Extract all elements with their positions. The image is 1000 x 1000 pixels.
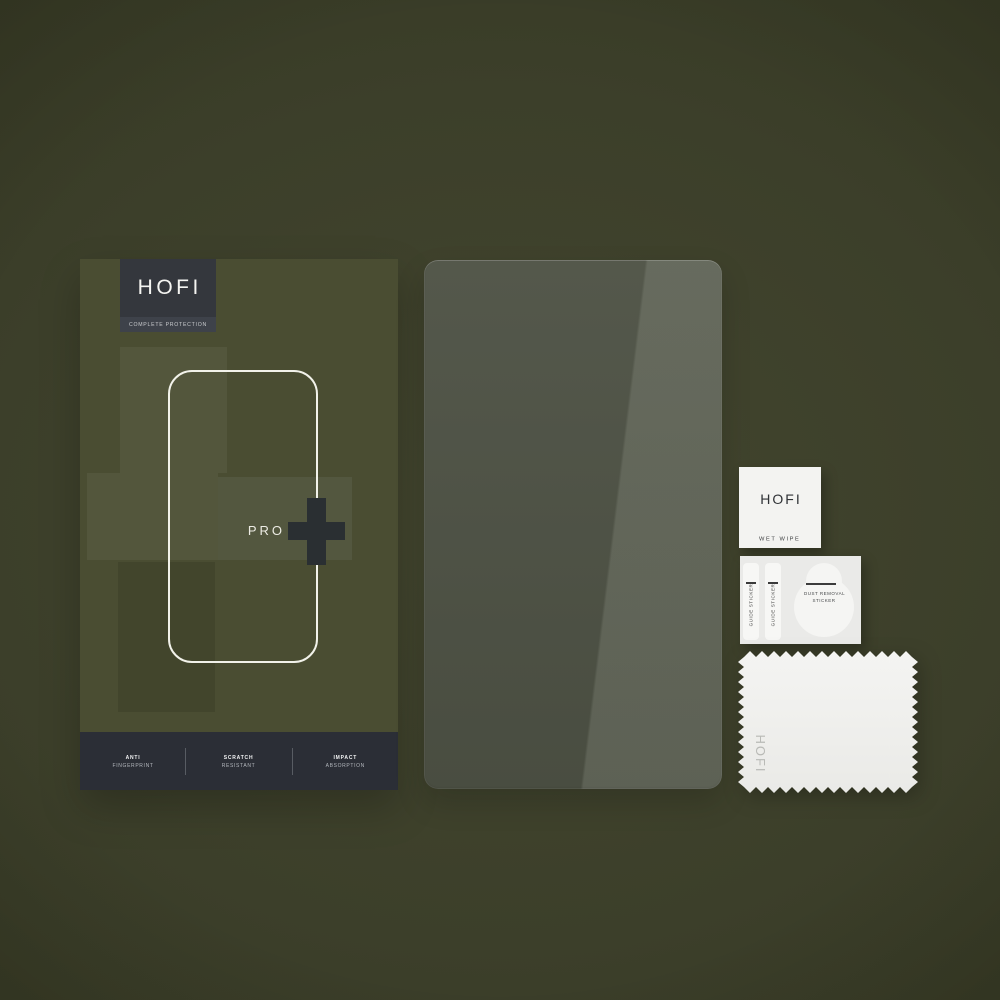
product-photo-scene: HOFI COMPLETE PROTECTION PRO ANTI FINGER… [0,0,1000,1000]
plus-icon-horizontal-bar [288,522,345,540]
microfiber-cloth: HOFI [738,651,918,794]
feature-anti-fingerprint: ANTI FINGERPRINT [80,746,185,777]
brand-label: HOFI COMPLETE PROTECTION [120,259,216,332]
feature-line2: ABSORPTION [326,761,365,769]
feature-impact-absorption: IMPACT ABSORPTION [293,746,398,777]
feature-line1: SCRATCH [222,753,256,761]
hofi-logo: HOFI [120,259,216,317]
guide-sticker-strip: GUIDE STICKER [743,563,759,640]
feature-scratch-resistant: SCRATCH RESISTANT [186,746,291,777]
feature-line1: ANTI [112,753,153,761]
feature-line2: RESISTANT [222,761,256,769]
sticker-mark-line [806,583,836,585]
wet-wipe-packet: HOFI WET WIPE [739,467,821,548]
hofi-logo: HOFI [745,734,777,772]
sticker-card: GUIDE STICKER GUIDE STICKER DUST REMOVAL… [740,556,861,644]
guide-sticker-label: GUIDE STICKER [771,583,776,626]
tempered-glass-sheet [424,260,722,789]
guide-sticker-label: GUIDE STICKER [749,583,754,626]
model-label: PRO [245,523,285,538]
phone-outline [168,370,318,663]
dust-removal-sticker-label: DUST REMOVAL STICKER [804,590,844,604]
brand-tagline: COMPLETE PROTECTION [120,317,216,332]
retail-box: HOFI COMPLETE PROTECTION PRO ANTI FINGER… [80,259,398,790]
feature-band: ANTI FINGERPRINT SCRATCH RESISTANT IMPAC… [80,732,398,790]
guide-sticker-strip: GUIDE STICKER [765,563,781,640]
hofi-logo: HOFI [739,491,821,507]
feature-line2: FINGERPRINT [112,761,153,769]
brand-tagline-text: COMPLETE PROTECTION [129,322,207,328]
wet-wipe-label: WET WIPE [739,529,821,547]
feature-line1: IMPACT [326,753,365,761]
